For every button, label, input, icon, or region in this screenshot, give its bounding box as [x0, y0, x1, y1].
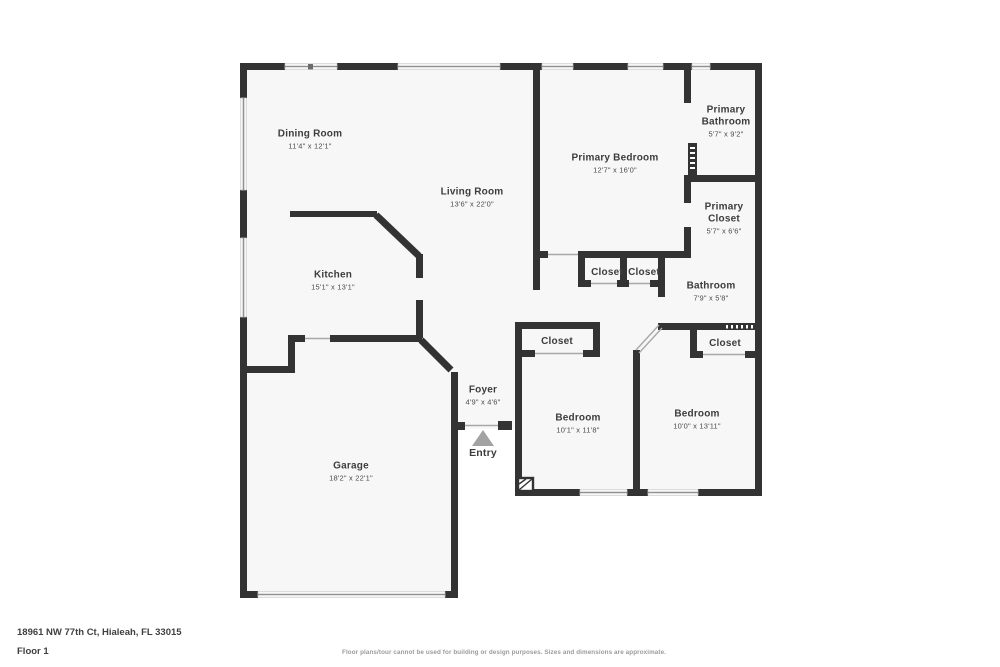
footer-address: 18961 NW 77th Ct, Hialeah, FL 33015	[17, 627, 182, 638]
footer-disclaimer: Floor plans/tour cannot be used for buil…	[342, 649, 666, 656]
floorplan-page: Dining Room 11'4" x 12'1" Living Room 13…	[0, 0, 1000, 667]
floorplan-drawing	[0, 0, 1000, 667]
floor-area	[240, 63, 762, 598]
entry-arrow-icon	[472, 430, 494, 446]
footer-floor-label: Floor 1	[17, 646, 49, 657]
